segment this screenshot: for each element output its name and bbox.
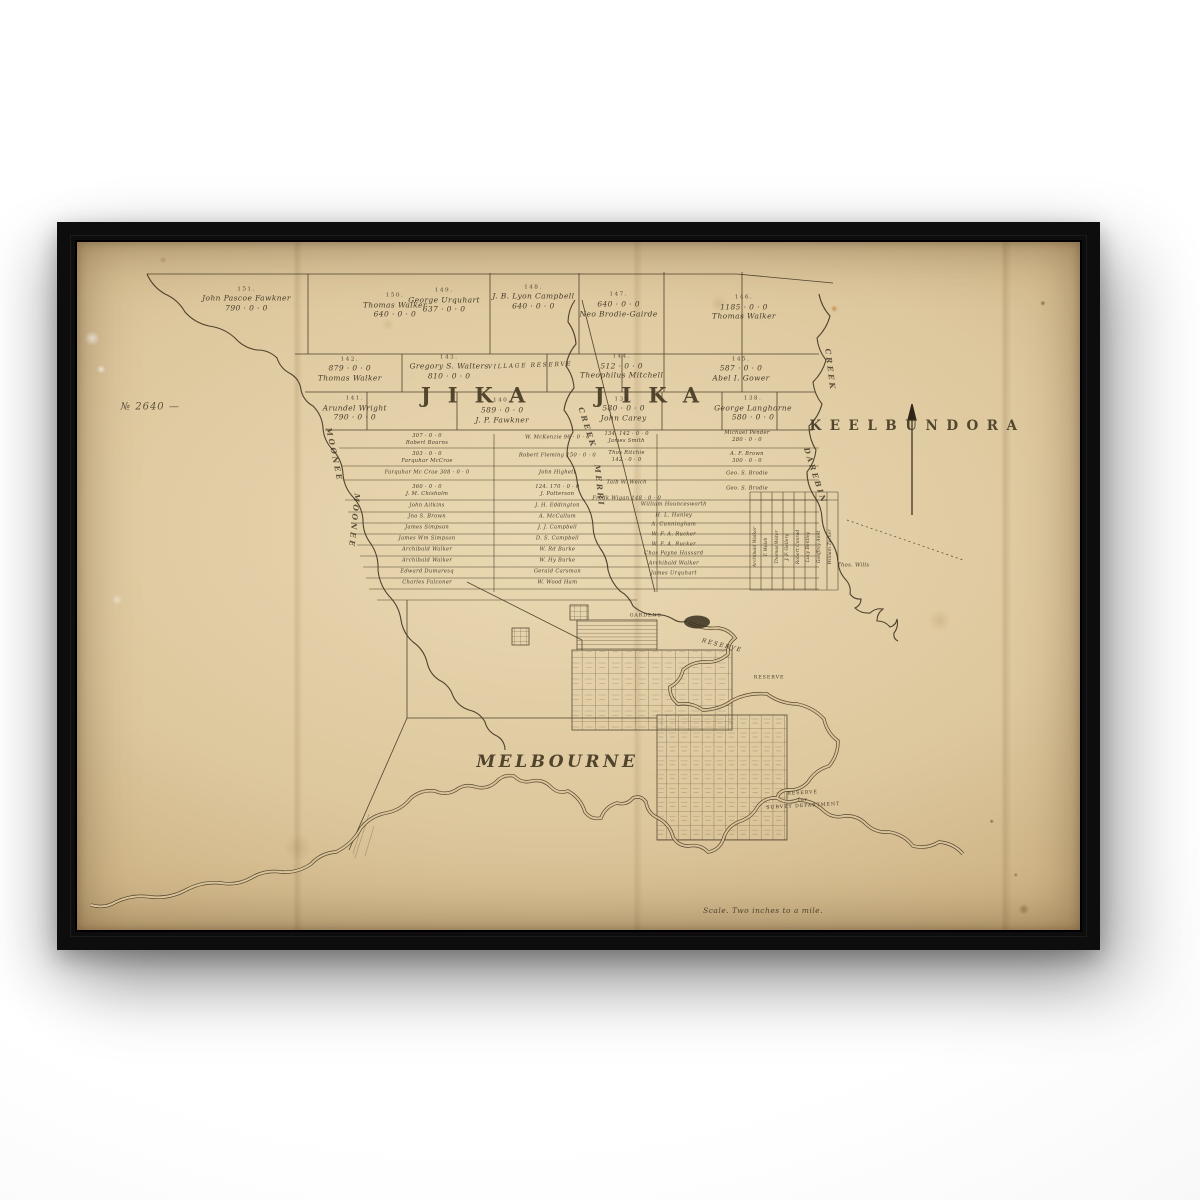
lot-142: 142.879 · 0 · 0Thomas Walker (318, 356, 382, 383)
lot-144: 144.512 · 0 · 0Theophilus Mitchell (580, 354, 663, 381)
creek-label: CREEK (575, 406, 598, 450)
village-reserve: VILLAGE RESERVE (488, 360, 573, 371)
strip-parcel: Chas Payne Hassard (644, 551, 703, 558)
picture-frame: № 2640 —JIKA JIKAKEELBUNDORAMELBOURNESca… (57, 222, 1100, 950)
strip-parcel: J. H. Eddington (535, 503, 580, 510)
strip-parcel: 307 · 0 · 0Robert Bourns (406, 433, 448, 447)
strip-parcel: James Wm Simpson (399, 536, 456, 543)
strip-parcel: 360 · 0 · 0J. M. Chisholm (406, 484, 448, 498)
strip-parcel: 124. 170 · 0 · 0J. Patterson (535, 484, 579, 498)
strip-parcel: John Highett (539, 470, 576, 477)
lot-138: 138.George Langhorne580 · 0 · 0 (714, 396, 792, 423)
strip-parcel: W. F. A. Rucker (652, 532, 696, 539)
strip-parcel: Geoffrey Amit (817, 531, 823, 563)
strip-parcel: Robert Fleming 150 · 0 · 0 (519, 452, 596, 459)
reserve-label: RESERVE (701, 637, 743, 655)
lot-147: 147.640 · 0 · 0Neo Brodie-Gairde (580, 292, 658, 319)
strip-parcel: Geo. S. Brodie (726, 470, 768, 477)
strip-parcel: W. Hy Burke (539, 558, 575, 565)
lot-145: 145.587 · 0 · 0Abel I. Gower (712, 356, 769, 383)
lot-139: 139.580 · 0 · 0John Carey (601, 396, 647, 423)
strip-parcel: Charles Falconer (402, 580, 452, 587)
strip-parcel: Geo. S. Brodie (726, 485, 768, 492)
strip-parcel: D. S. Campbell (536, 536, 579, 543)
lot-140: 140.589 · 0 · 0J. P. Fawkner (475, 398, 529, 425)
town-label: MELBOURNE (476, 751, 638, 773)
strip-parcel: Archibald Walker (402, 558, 452, 565)
strip-parcel: James Simpson (405, 525, 449, 532)
creek-label: MOONEE (346, 493, 361, 549)
adjacent-parish: KEELBUNDORA (810, 418, 1026, 436)
strip-parcel: J. J. Campbell (538, 525, 577, 532)
strip-parcel: Lucy Bentley (806, 532, 812, 562)
parish-title: JIKA JIKA (421, 382, 716, 409)
strip-parcel: 134. 142 · 0 · 0James Smith (604, 431, 648, 445)
strip-parcel: A. F. Brown300 · 0 · 0 (730, 451, 764, 465)
strip-parcel: W. F. A. Rucker (652, 541, 696, 548)
strip-parcel: H. L. Hanley (655, 512, 692, 519)
strip-parcel: W. Rd Burke (540, 547, 576, 554)
strip-parcel: Thos Ritchie142 · 0 · 0 (608, 450, 644, 464)
strip-parcel: Thos. Wills (837, 563, 869, 570)
strip-parcel: Jno S. Brown (408, 514, 446, 521)
map-labels: № 2640 —JIKA JIKAKEELBUNDORAMELBOURNESca… (77, 242, 1080, 930)
strip-parcel: 303 · 0 · 0Farquhar McCrae (401, 451, 452, 465)
strip-parcel: T. Walsh (764, 537, 770, 556)
strip-parcel: Talb W. Welch (606, 479, 646, 486)
lot-146: 146.1185 · 0 · 0Thomas Walker (712, 295, 776, 322)
lot-149: 149.George Urquhart637 · 0 · 0 (408, 288, 480, 315)
creek-label: CREEK (823, 348, 838, 392)
strip-parcel: W. McKenzie 96 · 0 · 0 (525, 435, 590, 442)
strip-parcel: W. Wood Ham (538, 580, 578, 587)
strip-parcel: J. F. Gellery (785, 533, 791, 560)
strip-parcel: Archibald Walker (753, 527, 759, 567)
scale-note: Scale. Two inches to a mile. (703, 906, 823, 916)
creek-label: MOONEE (323, 427, 344, 483)
strip-parcel: Farquhar Mc Crae 308 · 0 · 0 (385, 470, 470, 477)
strip-parcel: Thomas Water (775, 530, 781, 564)
reserve-label: RESERVE (754, 676, 785, 683)
strip-parcel: William Houncesworth (641, 501, 707, 508)
lot-148: 148.J. B. Lyon Campbell640 · 0 · 0 (492, 284, 574, 311)
poster-wall: № 2640 —JIKA JIKAKEELBUNDORAMELBOURNESca… (0, 0, 1200, 1200)
map-paper: № 2640 —JIKA JIKAKEELBUNDORAMELBOURNESca… (77, 242, 1080, 930)
survey-reserve-label: RESERVEforSURVEY DEPARTMENT (766, 789, 841, 813)
map-number: № 2640 — (121, 401, 180, 414)
lot-143: 143.Gregory S. Walters810 · 0 · 0 (410, 354, 489, 381)
strip-parcel: Gerald Carsman (534, 569, 581, 576)
strip-parcel: William Turner (828, 529, 834, 564)
strip-parcel: Robert Conrad (796, 530, 802, 565)
strip-parcel: Archibald Walker (402, 547, 452, 554)
lot-151: 151.John Pascoe Fawkner790 · 0 · 0 (202, 286, 291, 313)
lot-141: 141.Arundel Wright790 · 0 · 0 (323, 396, 387, 423)
strip-parcel: A. Cunningham (651, 522, 696, 529)
strip-parcel: Michael Pender280 · 0 · 0 (724, 430, 769, 444)
strip-parcel: James Urquhart (651, 570, 697, 577)
strip-parcel: John Aitkins (409, 503, 444, 510)
strip-parcel: Archibald Walker (649, 560, 699, 567)
creek-label: DAREBIN (801, 446, 829, 505)
strip-parcel: A. McCallum (539, 514, 576, 521)
strip-parcel: Edward Dumaresq (400, 569, 454, 576)
gardens-label: GARDENS (630, 614, 662, 621)
